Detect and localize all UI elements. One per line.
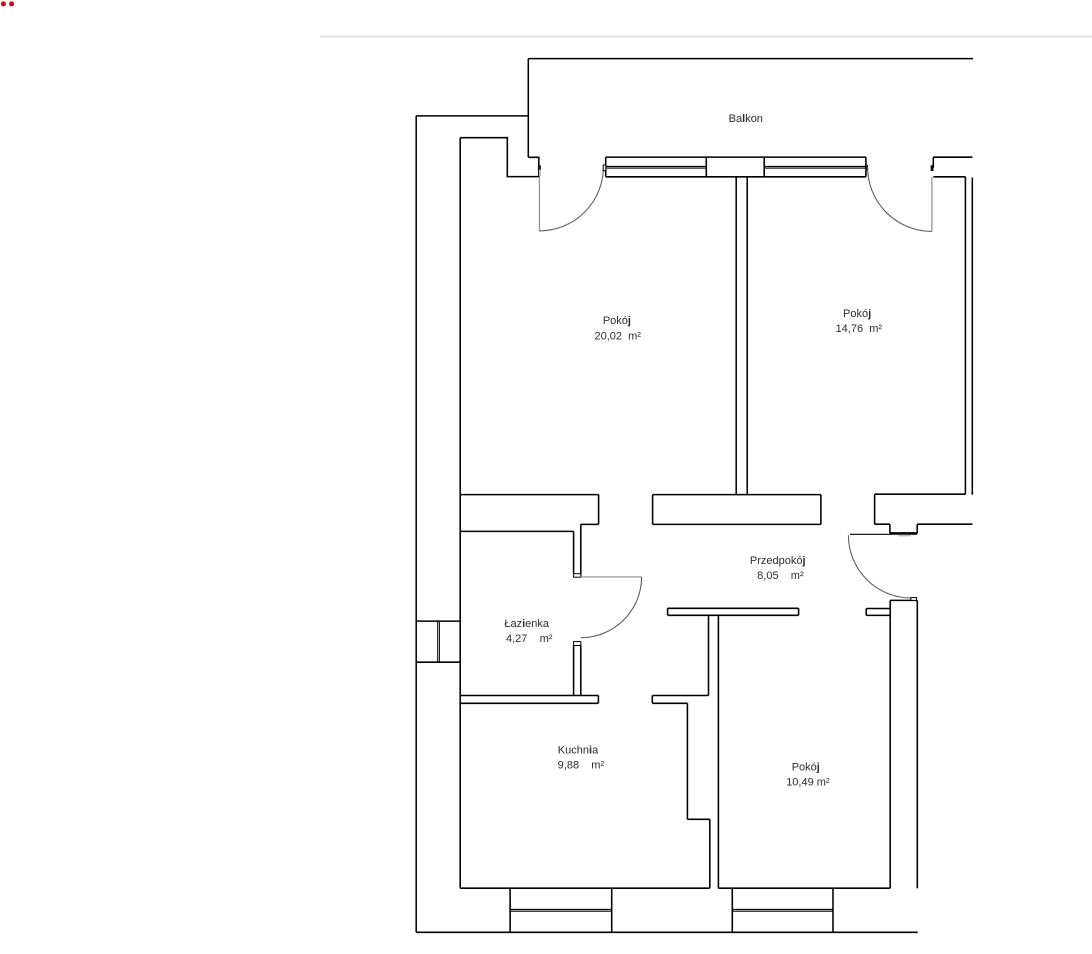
svg-text:Pokój: Pokój: [792, 762, 820, 774]
svg-text:20,02 m²: 20,02 m²: [594, 331, 641, 343]
svg-text:Pokój: Pokój: [843, 308, 871, 320]
svg-text:4,27 m²: 4,27 m²: [506, 633, 553, 645]
svg-text:Pokój: Pokój: [603, 315, 631, 327]
svg-text:Łazienka: Łazienka: [504, 618, 550, 630]
svg-text:Przedpokój: Przedpokój: [750, 555, 806, 567]
svg-text:8,05 m²: 8,05 m²: [757, 570, 804, 582]
svg-text:Kuchnia: Kuchnia: [558, 745, 599, 757]
svg-text:10,49 m²: 10,49 m²: [786, 777, 830, 789]
svg-text:14,76 m²: 14,76 m²: [836, 323, 883, 335]
svg-text:Balkon: Balkon: [729, 113, 763, 125]
svg-text:9,88 m²: 9,88 m²: [558, 760, 605, 772]
